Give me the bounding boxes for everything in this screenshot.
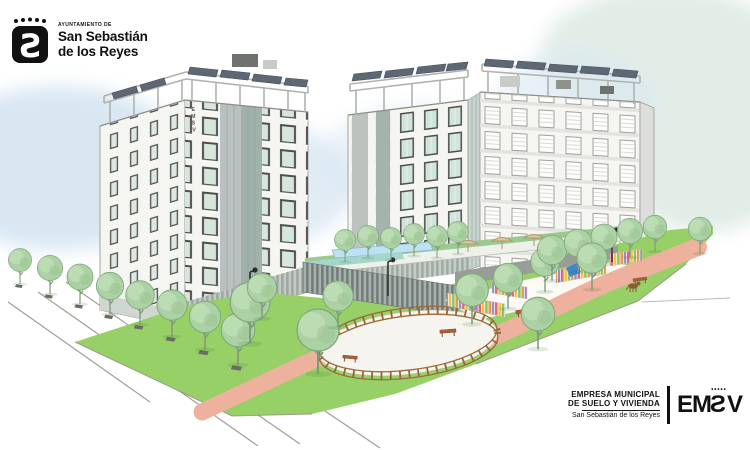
divider: [582, 410, 660, 411]
emsv-monogram: EM ••••• S V: [677, 391, 742, 419]
company-line1: EMPRESA MUNICIPAL: [568, 390, 660, 399]
org-name-line1: San Sebastián: [58, 30, 148, 44]
rendering-scene: E M S V: [0, 0, 750, 450]
company-subtitle: San Sebastián de los Reyes: [568, 412, 660, 420]
org-name-line2: de los Reyes: [58, 45, 148, 59]
org-type: AYUNTAMIENTO DE: [58, 23, 148, 28]
mark-prefix: EM: [677, 391, 711, 419]
company-line2: DE SUELO Y VIVIENDA: [568, 399, 660, 408]
mark-suffix: V: [727, 391, 742, 419]
ayuntamiento-logo: S AYUNTAMIENTO DE San Sebastián de los R…: [10, 16, 148, 66]
crown-shield-icon: S: [10, 16, 50, 66]
svg-text:S: S: [18, 27, 41, 65]
emsv-logo: EMPRESA MUNICIPAL DE SUELO Y VIVIENDA Sa…: [568, 386, 742, 424]
architectural-rendering-page: E M S V: [0, 0, 750, 450]
vertical-divider: [667, 386, 670, 424]
crowned-s-glyph: ••••• S: [711, 391, 726, 419]
